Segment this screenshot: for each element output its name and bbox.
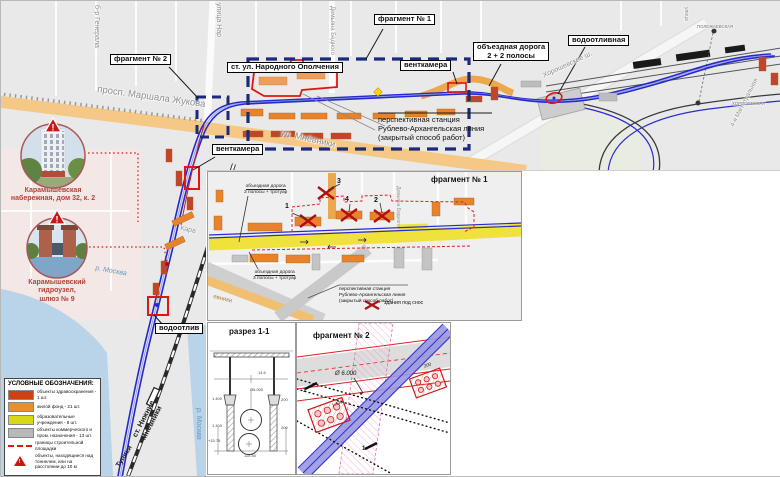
swatch-orange — [8, 402, 34, 412]
inset1-number-2: 2 — [374, 197, 378, 205]
legend-item-commercial: объекты коммерческого и пром. назначения… — [8, 427, 97, 438]
inset1-demolition-label: здания под снос — [384, 301, 423, 307]
vodootliv-dot — [155, 303, 159, 307]
street-generala: б-р Генерала — [92, 5, 100, 48]
legend-item-education: образовательные учреждения - 8 шт. — [8, 414, 97, 425]
dim-1400-a: 1.400 — [212, 397, 222, 402]
legend: УСЛОВНЫЕ ОБОЗНАЧЕНИЯ: объекты здравоохра… — [4, 378, 101, 476]
swatch-gray — [8, 428, 34, 438]
ground-beam — [214, 353, 289, 357]
dim-elevation: 14.6 — [258, 371, 266, 376]
legend-item-health: объекты здравоохранения - 1 шт. — [8, 389, 97, 400]
dim-200-b: 200 — [281, 426, 288, 431]
warning-triangle-icon — [14, 456, 26, 466]
photo-caption-naberezhnaya: Карамышевскаянабережная, дом 32, к. 2 — [9, 187, 97, 204]
callout-fragment2: фрагмент № 2 — [110, 54, 171, 65]
inset1-number-3: 3 — [337, 178, 341, 186]
inset1-number-4: 4 — [345, 196, 349, 204]
swatch-yellow — [8, 415, 34, 425]
river-label-moskva: р. Москва — [194, 408, 202, 440]
inset1-street-bednogo: Демьяна Бедного — [394, 186, 400, 227]
inset1-bypass-bottom-label: объездная дорога3 полосы + тротуар — [253, 270, 296, 281]
dim-diameter: Ø6.000 — [250, 388, 263, 393]
callout-ventkamera-left: венткамера — [212, 144, 263, 155]
callout-ventkamera-right: венткамера — [400, 60, 451, 71]
street-narodnogo: улица Нар — [214, 3, 222, 37]
legend-item-boundary: границы строительной площадки — [8, 440, 97, 451]
dim-level: +15.75 — [208, 439, 220, 444]
construction-scheme-map: ! ! — [0, 0, 780, 477]
inset1-bypass-top-label: объездная дорога3 полосы + тротуар — [244, 184, 287, 195]
callout-fragment1: фрагмент № 1 — [374, 14, 435, 25]
vodootlivnaya-dot — [553, 97, 556, 100]
razrez-title: разрез 1-1 — [229, 327, 270, 336]
pile-left — [227, 405, 234, 451]
metro-label-khoroshevskaya: ХОРОШЕВСКАЯ — [732, 102, 765, 107]
inset-fragment2-art — [297, 323, 450, 474]
dash-line-icon — [8, 445, 32, 447]
inset1-title: фрагмент № 1 — [431, 175, 488, 184]
metro-label-polezhaevskaya: ПОЛЕЖАЕВСКАЯ — [697, 25, 733, 30]
dim-200-a: 200 — [281, 398, 288, 403]
photo-caption-gidrouzel: Карамышевскийгидроузел,шлюз № 9 — [15, 279, 99, 304]
svg-text:!: ! — [52, 123, 55, 133]
dim-bottom: 115.50 — [244, 454, 256, 459]
street-bednogo: Демьяна Бедного — [328, 6, 335, 55]
callout-vodootliv: водоотлив — [155, 323, 203, 334]
inset2-section-mark-b: 1 — [362, 446, 365, 453]
inset2-title: фрагмент № 2 — [313, 331, 370, 340]
inset2-section-mark-a: 1 — [303, 388, 306, 395]
legend-title: УСЛОВНЫЕ ОБОЗНАЧЕНИЯ: — [8, 381, 97, 387]
inset-razrez: разрез 1-1 14.6 Ø6.000 1.400 200 1.400 2… — [207, 322, 296, 475]
callout-station: ст. ул. Народного Ополчения — [227, 62, 343, 73]
inset2-diameter-label: Ø 6.000 — [335, 371, 356, 378]
svg-text:!: ! — [56, 215, 59, 225]
inset-fragment1: фрагмент № 1 объездная дорога3 полосы + … — [207, 171, 522, 321]
green-zone — [541, 119, 641, 173]
pile-right — [270, 405, 277, 451]
inset1-number-1: 1 — [285, 203, 289, 211]
callout-bypass-road: объездная дорога2 + 2 полосы — [473, 42, 549, 61]
perspective-station-label: перспективная станцияРублево-Архангельск… — [378, 115, 484, 142]
street-ulitsa: улица — [682, 7, 688, 21]
inset-fragment2: фрагмент № 2 Ø 6.000 200 1.400 1 1 — [296, 322, 451, 475]
connector-dot — [165, 262, 169, 266]
legend-item-over-tunnel: объекты, находящиеся над тоннелем, или н… — [8, 453, 97, 470]
legend-item-housing: жилой фонд - 21 шт. — [8, 402, 97, 412]
dim-1400-b: 1.400 — [212, 424, 222, 429]
swatch-red — [8, 390, 34, 400]
callout-vodootlivnaya: водоотливная — [568, 35, 629, 46]
